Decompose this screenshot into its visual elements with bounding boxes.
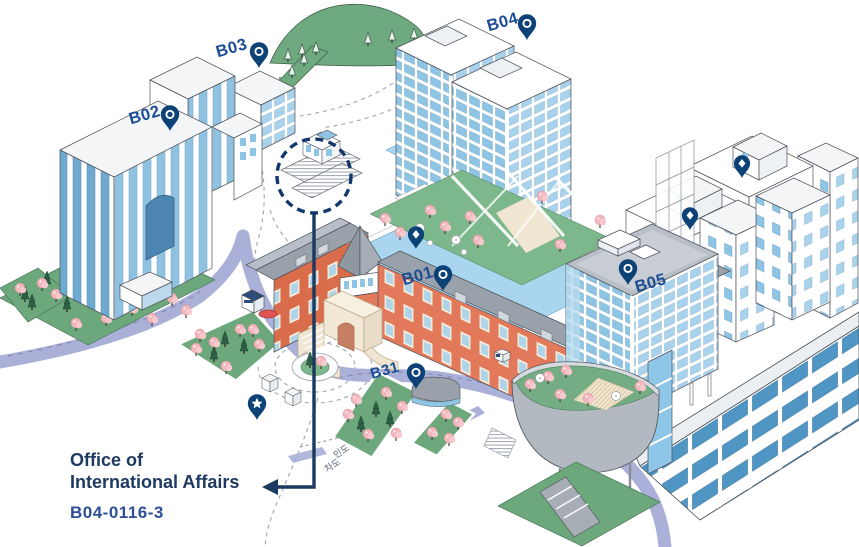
pin-b04[interactable]: [518, 14, 536, 40]
callout-line2: International Affairs: [70, 472, 239, 492]
campus-map: B02 B03 B04 B01 B05 B31 인도 차도 Office of …: [0, 0, 859, 547]
truck: [495, 349, 510, 362]
planter-strip: [412, 401, 474, 456]
callout: Office of International Affairs B04-0116…: [70, 450, 239, 522]
callout-line1: Office of: [70, 450, 144, 470]
building-label-b03[interactable]: B03: [214, 35, 250, 61]
building-label-b04[interactable]: B04: [485, 9, 521, 35]
building-t2: [756, 178, 830, 320]
kiosk: [262, 374, 278, 392]
campus-map-canvas: B02 B03 B04 B01 B05 B31 인도 차도 Office of …: [0, 0, 859, 547]
lane-band: [288, 447, 327, 463]
building-b02: [60, 57, 262, 320]
lane-divider: [300, 438, 338, 447]
kiosk: [285, 388, 301, 406]
outdoor-stairs: [484, 428, 516, 458]
bus-stop-sign: [259, 310, 277, 318]
arrowhead-icon: [262, 479, 278, 495]
callout-code: B04-0116-3: [70, 503, 164, 522]
pin-star[interactable]: [248, 394, 266, 420]
pin-b03[interactable]: [250, 42, 268, 68]
